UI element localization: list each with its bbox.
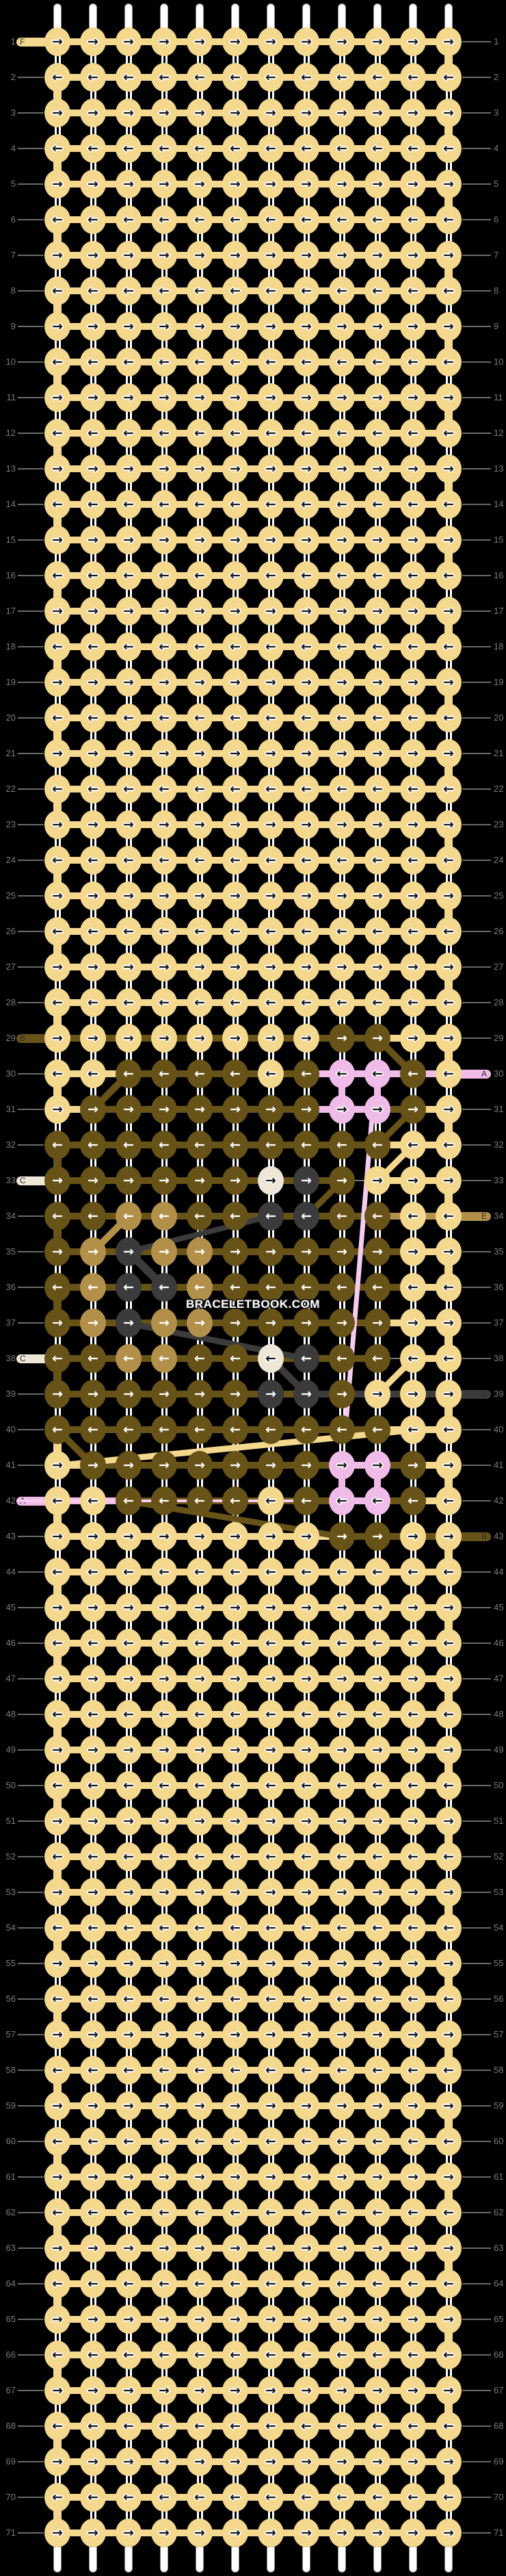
backward-knot-arrow-icon: ←: [230, 2064, 241, 2077]
knot: ←: [44, 561, 70, 590]
knot: →: [400, 1736, 426, 1764]
knot: ←: [80, 1700, 106, 1729]
leader-line-left: [18, 219, 44, 220]
knot: →: [329, 27, 355, 56]
knot: ←: [44, 1486, 70, 1515]
knot: →: [44, 1309, 70, 1337]
knot: →: [187, 1309, 213, 1337]
backward-knot-arrow-icon: ←: [88, 712, 98, 725]
forward-knot-arrow-icon: →: [372, 320, 383, 333]
forward-knot-arrow-icon: →: [443, 320, 454, 333]
forward-knot-arrow-icon: →: [336, 747, 347, 760]
row-number-left: 62: [0, 2208, 16, 2217]
knot: ←: [44, 348, 70, 376]
leader-line-right: [462, 433, 491, 434]
forward-knot-arrow-icon: →: [88, 1032, 98, 1045]
forward-knot-arrow-icon: →: [443, 1886, 454, 1899]
forward-knot-arrow-icon: →: [88, 2313, 98, 2326]
backward-knot-arrow-icon: ←: [408, 1708, 418, 1721]
backward-knot-arrow-icon: ←: [336, 1068, 347, 1081]
row-number-left: 45: [0, 1603, 16, 1612]
warp-string-top: [125, 4, 132, 29]
forward-knot-arrow-icon: →: [372, 1815, 383, 1828]
backward-knot-arrow-icon: ←: [123, 1068, 134, 1081]
knot: ←: [293, 205, 319, 234]
row-number-left: 3: [0, 108, 16, 118]
row-number-right: 67: [494, 2386, 506, 2395]
forward-knot-arrow-icon: →: [159, 605, 170, 618]
forward-knot-arrow-icon: →: [301, 178, 312, 191]
knot: ←: [80, 1273, 106, 1302]
backward-knot-arrow-icon: ←: [194, 996, 205, 1009]
forward-knot-arrow-icon: →: [265, 747, 276, 760]
knot: →: [258, 668, 284, 697]
knot: ←: [151, 348, 177, 376]
row-number-left: 25: [0, 891, 16, 901]
backward-knot-arrow-icon: ←: [443, 854, 454, 867]
knot: ←: [329, 1558, 355, 1586]
forward-knot-arrow-icon: →: [194, 819, 205, 832]
knot: ←: [258, 1771, 284, 1800]
forward-knot-arrow-icon: →: [336, 2100, 347, 2113]
knot: →: [329, 526, 355, 554]
forward-knot-arrow-icon: →: [194, 1815, 205, 1828]
knot: →: [187, 2376, 213, 2405]
leader-line-right: [462, 610, 491, 612]
knot: →: [364, 1095, 390, 1124]
knot: ←: [80, 632, 106, 661]
knot: ←: [116, 2056, 142, 2085]
backward-knot-arrow-icon: ←: [230, 925, 241, 938]
forward-knot-arrow-icon: →: [194, 178, 205, 191]
knot: →: [293, 1451, 319, 1480]
forward-knot-arrow-icon: →: [443, 2527, 454, 2540]
forward-knot-arrow-icon: →: [336, 2242, 347, 2255]
knot: →: [222, 2091, 248, 2120]
row-number-right: 45: [494, 1603, 506, 1612]
backward-knot-arrow-icon: ←: [265, 854, 276, 867]
knot: ←: [151, 846, 177, 875]
knot: →: [364, 383, 390, 412]
backward-knot-arrow-icon: ←: [443, 1851, 454, 1864]
knot: →: [329, 597, 355, 626]
forward-knot-arrow-icon: →: [123, 320, 134, 333]
backward-knot-arrow-icon: ←: [408, 2278, 418, 2291]
row-number-right: 70: [494, 2493, 506, 2502]
thread-marker-letter: A: [481, 1069, 487, 1079]
knot: ←: [364, 490, 390, 519]
forward-knot-arrow-icon: →: [372, 819, 383, 832]
leader-line-right: [462, 824, 491, 825]
backward-knot-arrow-icon: ←: [443, 1566, 454, 1579]
forward-knot-arrow-icon: →: [230, 1601, 241, 1614]
forward-knot-arrow-icon: →: [265, 2028, 276, 2042]
forward-knot-arrow-icon: →: [265, 961, 276, 974]
knot: →: [44, 810, 70, 839]
row-number-left: 43: [0, 1532, 16, 1541]
forward-knot-arrow-icon: →: [301, 391, 312, 404]
knot: ←: [436, 1771, 462, 1800]
knot: →: [222, 881, 248, 910]
leader-line-left: [18, 255, 44, 256]
knot: →: [80, 597, 106, 626]
knot: →: [400, 1024, 426, 1053]
forward-knot-arrow-icon: →: [372, 249, 383, 262]
knot: →: [364, 1807, 390, 1836]
knot: →: [80, 1024, 106, 1053]
leader-line-right: [462, 753, 491, 754]
forward-knot-arrow-icon: →: [336, 107, 347, 120]
warp-string-top: [196, 4, 203, 29]
knot: ←: [151, 1059, 177, 1088]
forward-knot-arrow-icon: →: [336, 320, 347, 333]
knot: ←: [151, 704, 177, 732]
row-number-right: 15: [494, 535, 506, 545]
forward-knot-arrow-icon: →: [123, 249, 134, 262]
leader-line-left: [18, 2176, 44, 2178]
forward-knot-arrow-icon: →: [230, 1744, 241, 1757]
knot: →: [116, 2091, 142, 2120]
knot: ←: [436, 632, 462, 661]
backward-knot-arrow-icon: ←: [336, 1993, 347, 2006]
forward-knot-arrow-icon: →: [301, 2384, 312, 2397]
forward-knot-arrow-icon: →: [194, 1673, 205, 1686]
backward-knot-arrow-icon: ←: [159, 569, 170, 582]
knot: →: [400, 2519, 426, 2547]
backward-knot-arrow-icon: ←: [230, 996, 241, 1009]
forward-knot-arrow-icon: →: [88, 961, 98, 974]
backward-knot-arrow-icon: ←: [230, 1495, 241, 1508]
leader-line-right: [462, 2105, 491, 2107]
backward-knot-arrow-icon: ←: [194, 569, 205, 582]
forward-knot-arrow-icon: →: [265, 36, 276, 49]
leader-line-right: [462, 397, 491, 398]
backward-knot-arrow-icon: ←: [408, 214, 418, 227]
backward-knot-arrow-icon: ←: [372, 1352, 383, 1365]
knot: ←: [44, 2269, 70, 2298]
forward-knot-arrow-icon: →: [123, 1815, 134, 1828]
knot: →: [44, 1664, 70, 1693]
forward-knot-arrow-icon: →: [301, 2456, 312, 2469]
knot: ←: [364, 2412, 390, 2440]
knot: ←: [116, 1415, 142, 1444]
backward-knot-arrow-icon: ←: [336, 2278, 347, 2291]
backward-knot-arrow-icon: ←: [301, 1779, 312, 1792]
forward-knot-arrow-icon: →: [194, 1032, 205, 1045]
knot: ←: [151, 1131, 177, 1159]
knot: →: [293, 2519, 319, 2547]
leader-line-right: [462, 2461, 491, 2462]
row-number-left: 50: [0, 1781, 16, 1790]
row-number-left: 7: [0, 250, 16, 260]
knot: →: [222, 2519, 248, 2547]
backward-knot-arrow-icon: ←: [408, 641, 418, 654]
knot: ←: [187, 490, 213, 519]
row-number-right: 2: [494, 73, 506, 82]
forward-knot-arrow-icon: →: [159, 178, 170, 191]
knot: →: [222, 241, 248, 270]
forward-knot-arrow-icon: →: [372, 1174, 383, 1187]
forward-knot-arrow-icon: →: [230, 178, 241, 191]
knot: →: [80, 1807, 106, 1836]
knot: →: [329, 1807, 355, 1836]
leader-line-left: [18, 1393, 44, 1395]
leader-line-right: [462, 966, 491, 968]
forward-knot-arrow-icon: →: [159, 1032, 170, 1045]
row-number-left: 65: [0, 2315, 16, 2324]
knot: ←: [44, 1202, 70, 1231]
forward-knot-arrow-icon: →: [52, 2313, 63, 2326]
row-number-left: 48: [0, 1710, 16, 1719]
backward-knot-arrow-icon: ←: [443, 1637, 454, 1650]
knot: →: [436, 1593, 462, 1622]
knot: ←: [151, 2269, 177, 2298]
knot: ←: [293, 2341, 319, 2369]
warp-string-bottom: [90, 2547, 96, 2572]
backward-knot-arrow-icon: ←: [336, 1779, 347, 1792]
knot: ←: [222, 1985, 248, 2013]
backward-knot-arrow-icon: ←: [443, 1281, 454, 1294]
forward-knot-arrow-icon: →: [301, 36, 312, 49]
knot: ←: [329, 276, 355, 305]
leader-line-right: [462, 1038, 491, 1039]
backward-knot-arrow-icon: ←: [123, 1851, 134, 1864]
knot: →: [44, 1878, 70, 1907]
forward-knot-arrow-icon: →: [443, 1459, 454, 1472]
forward-knot-arrow-icon: →: [372, 1886, 383, 1899]
forward-knot-arrow-icon: →: [301, 2313, 312, 2326]
knot: →: [151, 241, 177, 270]
backward-knot-arrow-icon: ←: [336, 2491, 347, 2504]
backward-knot-arrow-icon: ←: [194, 285, 205, 298]
knot: →: [329, 383, 355, 412]
knot: ←: [80, 988, 106, 1017]
row-number-right: 54: [494, 1923, 506, 1933]
knot: →: [400, 2091, 426, 2120]
forward-knot-arrow-icon: →: [336, 1317, 347, 1330]
knot: ←: [258, 561, 284, 590]
knot: →: [44, 526, 70, 554]
forward-knot-arrow-icon: →: [336, 1530, 347, 1543]
knot: ←: [44, 775, 70, 803]
backward-knot-arrow-icon: ←: [372, 1210, 383, 1223]
backward-knot-arrow-icon: ←: [336, 356, 347, 369]
backward-knot-arrow-icon: ←: [265, 498, 276, 511]
forward-knot-arrow-icon: →: [230, 605, 241, 618]
backward-knot-arrow-icon: ←: [230, 71, 241, 84]
backward-knot-arrow-icon: ←: [123, 783, 134, 796]
leader-line-right: [462, 2283, 491, 2284]
forward-knot-arrow-icon: →: [123, 1744, 134, 1757]
leader-line-left: [18, 895, 44, 897]
knot: ←: [436, 1914, 462, 1942]
forward-knot-arrow-icon: →: [443, 1174, 454, 1187]
backward-knot-arrow-icon: ←: [301, 2206, 312, 2219]
backward-knot-arrow-icon: ←: [159, 2278, 170, 2291]
knot: →: [293, 2020, 319, 2049]
knot: ←: [258, 2341, 284, 2369]
knot: ←: [436, 1629, 462, 1658]
row-number-right: 9: [494, 322, 506, 331]
backward-knot-arrow-icon: ←: [443, 2420, 454, 2433]
knot: ←: [80, 2198, 106, 2227]
forward-knot-arrow-icon: →: [408, 2313, 418, 2326]
knot: ←: [364, 1629, 390, 1658]
backward-knot-arrow-icon: ←: [408, 1851, 418, 1864]
backward-knot-arrow-icon: ←: [52, 142, 63, 155]
knot: ←: [258, 1842, 284, 1871]
knot: →: [400, 2234, 426, 2263]
backward-knot-arrow-icon: ←: [301, 1210, 312, 1223]
row-number-left: 15: [0, 535, 16, 545]
forward-knot-arrow-icon: →: [123, 2456, 134, 2469]
knot: ←: [44, 846, 70, 875]
knot: ←: [222, 1202, 248, 1231]
forward-knot-arrow-icon: →: [123, 1103, 134, 1116]
row-number-left: 60: [0, 2137, 16, 2146]
knot: →: [329, 881, 355, 910]
leader-line-left: [18, 2354, 44, 2356]
knot: ←: [187, 917, 213, 946]
knot: →: [222, 1522, 248, 1551]
backward-knot-arrow-icon: ←: [194, 854, 205, 867]
forward-knot-arrow-icon: →: [88, 676, 98, 689]
knot: ←: [116, 1486, 142, 1515]
row-number-right: 13: [494, 464, 506, 474]
knot: →: [187, 312, 213, 341]
forward-knot-arrow-icon: →: [265, 890, 276, 903]
forward-knot-arrow-icon: →: [52, 1673, 63, 1686]
forward-knot-arrow-icon: →: [372, 2028, 383, 2042]
knot: ←: [222, 419, 248, 448]
leader-line-left: [18, 77, 44, 78]
forward-knot-arrow-icon: →: [52, 1317, 63, 1330]
leader-line-right: [462, 468, 491, 469]
knot: ←: [187, 561, 213, 590]
leader-line-left: [18, 1287, 44, 1288]
row-number-left: 47: [0, 1674, 16, 1684]
leader-line-left: [18, 1322, 44, 1324]
knot: ←: [151, 1842, 177, 1871]
knot: →: [80, 1949, 106, 1978]
knot: ←: [44, 1131, 70, 1159]
row-number-right: 48: [494, 1710, 506, 1719]
knot: ←: [116, 917, 142, 946]
knot: ←: [364, 276, 390, 305]
forward-knot-arrow-icon: →: [443, 1388, 454, 1401]
backward-knot-arrow-icon: ←: [372, 1139, 383, 1152]
knot: ←: [400, 1985, 426, 2013]
forward-knot-arrow-icon: →: [336, 391, 347, 404]
knot: ←: [364, 1344, 390, 1373]
backward-knot-arrow-icon: ←: [408, 2491, 418, 2504]
forward-knot-arrow-icon: →: [52, 2527, 63, 2540]
leader-line-left: [18, 753, 44, 754]
forward-knot-arrow-icon: →: [408, 2527, 418, 2540]
backward-knot-arrow-icon: ←: [230, 854, 241, 867]
knot: ←: [116, 1558, 142, 1586]
backward-knot-arrow-icon: ←: [159, 1851, 170, 1864]
knot: →: [293, 1878, 319, 1907]
thread-marker-letter: D: [481, 1389, 487, 1399]
knot: →: [293, 454, 319, 483]
forward-knot-arrow-icon: →: [265, 1744, 276, 1757]
row-number-right: 18: [494, 642, 506, 652]
warp-string-bottom: [232, 2547, 239, 2572]
forward-knot-arrow-icon: →: [372, 1246, 383, 1259]
knot: →: [364, 2234, 390, 2263]
forward-knot-arrow-icon: →: [123, 819, 134, 832]
row-number-left: 67: [0, 2386, 16, 2395]
knot: ←: [400, 2056, 426, 2085]
backward-knot-arrow-icon: ←: [123, 2349, 134, 2362]
forward-knot-arrow-icon: →: [372, 1388, 383, 1401]
forward-knot-arrow-icon: →: [194, 36, 205, 49]
forward-knot-arrow-icon: →: [230, 107, 241, 120]
knot: ←: [116, 2198, 142, 2227]
knot: ←: [116, 1842, 142, 1871]
row-number-right: 8: [494, 286, 506, 296]
knot: →: [116, 668, 142, 697]
knot: ←: [44, 490, 70, 519]
backward-knot-arrow-icon: ←: [88, 427, 98, 440]
knot: ←: [436, 704, 462, 732]
knot: →: [364, 2519, 390, 2547]
knot: →: [436, 312, 462, 341]
knot: ←: [44, 2056, 70, 2085]
knot: ←: [222, 2127, 248, 2156]
knot: →: [436, 953, 462, 981]
backward-knot-arrow-icon: ←: [88, 2064, 98, 2077]
forward-knot-arrow-icon: →: [408, 2028, 418, 2042]
knot: →: [151, 27, 177, 56]
knot: ←: [44, 988, 70, 1017]
leader-line-right: [462, 1963, 491, 1964]
row-number-left: 46: [0, 1638, 16, 1648]
backward-knot-arrow-icon: ←: [88, 1210, 98, 1223]
knot: →: [364, 1309, 390, 1337]
knot: ←: [329, 2412, 355, 2440]
row-number-right: 39: [494, 1389, 506, 1399]
knot: →: [364, 1878, 390, 1907]
backward-knot-arrow-icon: ←: [52, 1495, 63, 1508]
knot: →: [187, 99, 213, 127]
forward-knot-arrow-icon: →: [123, 391, 134, 404]
knot: →: [400, 739, 426, 768]
knot: ←: [364, 1558, 390, 1586]
knot: ←: [364, 2483, 390, 2512]
knot: →: [293, 1095, 319, 1124]
row-number-right: 33: [494, 1176, 506, 1185]
knot: ←: [80, 490, 106, 519]
knot: →: [222, 2234, 248, 2263]
knot: →: [116, 1807, 142, 1836]
backward-knot-arrow-icon: ←: [336, 2206, 347, 2219]
leader-line-right: [462, 1322, 491, 1324]
forward-knot-arrow-icon: →: [194, 2527, 205, 2540]
knot: →: [293, 1166, 319, 1195]
row-number-left: 12: [0, 428, 16, 438]
knot: ←: [400, 632, 426, 661]
knot: →: [400, 312, 426, 341]
backward-knot-arrow-icon: ←: [88, 1993, 98, 2006]
knot: →: [116, 1736, 142, 1764]
row-number-right: 3: [494, 108, 506, 118]
backward-knot-arrow-icon: ←: [194, 2064, 205, 2077]
backward-knot-arrow-icon: ←: [336, 854, 347, 867]
forward-knot-arrow-icon: →: [301, 2171, 312, 2184]
forward-knot-arrow-icon: →: [194, 605, 205, 618]
